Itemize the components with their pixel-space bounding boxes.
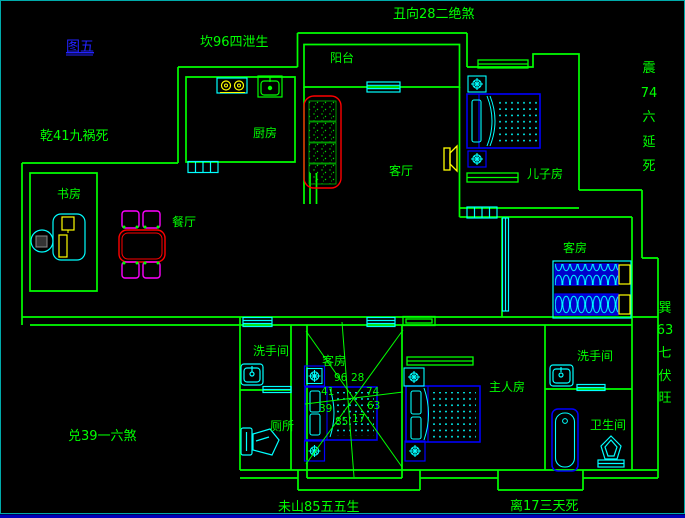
room-label-kitchen: 厨房 bbox=[253, 125, 277, 140]
room-label-washroom-right: 洗手间 bbox=[577, 349, 613, 363]
bottom-border-bar bbox=[0, 515, 685, 518]
perimeter-label-upper-left: 坎96四泄生 bbox=[200, 35, 269, 50]
nightstand-guest-top bbox=[305, 366, 325, 386]
compass-number-s-right: 17 bbox=[352, 413, 365, 425]
sofa bbox=[304, 96, 341, 188]
figure-label: 图五 bbox=[66, 39, 94, 55]
vertical-char: 63 bbox=[657, 323, 674, 338]
perimeter-label-bottom-right: 离17三天死 bbox=[510, 498, 579, 514]
vertical-char: 七 bbox=[658, 346, 671, 361]
room-label-study: 书房 bbox=[57, 186, 81, 201]
vertical-char: 伏 bbox=[658, 369, 671, 384]
room-label-dining: 餐厅 bbox=[172, 214, 196, 229]
vertical-char: 巽 bbox=[658, 301, 671, 316]
floor-plan-canvas: 图五 丑向28二绝煞 坎96四泄生 乾41九祸死 兑39一六煞 未山85五五生 … bbox=[0, 0, 685, 518]
floor-plan-screenshot: 图五 丑向28二绝煞 坎96四泄生 乾41九祸死 兑39一六煞 未山85五五生 … bbox=[0, 0, 685, 518]
room-label-master: 主人房 bbox=[489, 379, 525, 394]
vertical-char: 死 bbox=[642, 159, 655, 174]
room-label-toilet: 厕所 bbox=[270, 419, 294, 433]
room-label-washroom-left: 洗手间 bbox=[253, 344, 289, 358]
vertical-char: 旺 bbox=[658, 391, 671, 406]
room-label-living: 客厅 bbox=[389, 163, 413, 178]
compass-number-e: 63 bbox=[367, 400, 380, 412]
room-label-sons-room: 儿子房 bbox=[527, 166, 563, 181]
vertical-char: 延 bbox=[642, 135, 655, 150]
perimeter-label-bottom-center: 未山85五五生 bbox=[278, 500, 360, 515]
perimeter-label-lower-left: 兑39一六煞 bbox=[68, 429, 137, 444]
vertical-char: 六 bbox=[642, 110, 655, 125]
compass-number-ne: 74 bbox=[366, 386, 380, 398]
room-label-guest-lower: 客房 bbox=[322, 353, 346, 368]
compass-number-n-left: 96 bbox=[334, 372, 348, 384]
vertical-char: 74 bbox=[641, 86, 658, 101]
room-label-balcony: 阳台 bbox=[330, 50, 354, 65]
room-label-guest-upper: 客房 bbox=[563, 240, 587, 255]
compass-number-nw: 41 bbox=[321, 386, 334, 398]
perimeter-label-left: 乾41九祸死 bbox=[40, 129, 109, 144]
room-label-bathroom: 卫生间 bbox=[590, 418, 626, 432]
vertical-char: 震 bbox=[642, 61, 655, 76]
compass-number-n-right: 28 bbox=[351, 372, 364, 384]
compass-number-w: 39 bbox=[319, 403, 332, 415]
perimeter-label-top: 丑向28二绝煞 bbox=[393, 6, 475, 22]
compass-number-s-left: 85 bbox=[335, 416, 348, 428]
